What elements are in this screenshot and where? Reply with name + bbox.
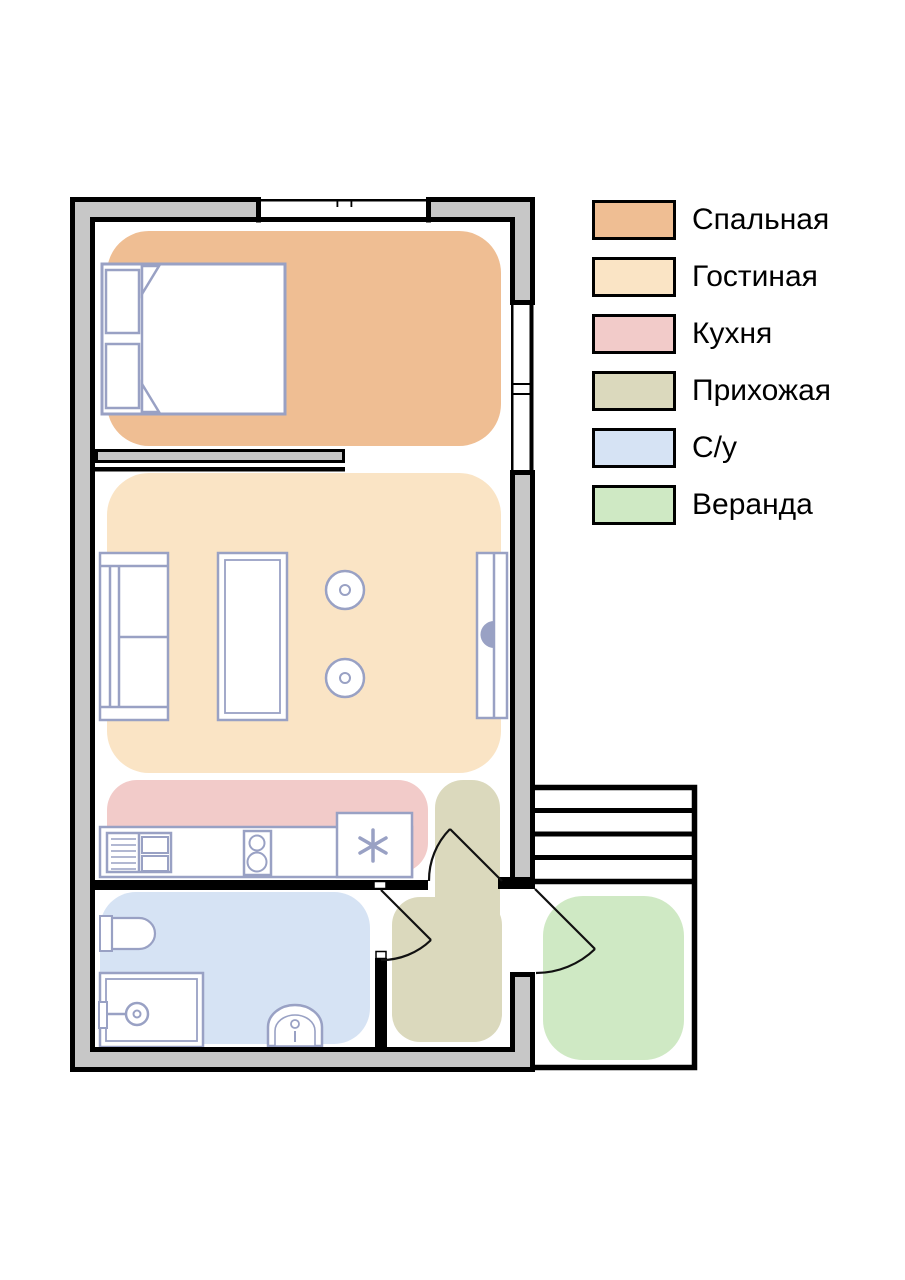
legend-label-kitchen: Кухня <box>692 314 772 354</box>
legend-row-living: Гостиная <box>592 257 831 297</box>
entry-opening <box>510 889 535 977</box>
zone-veranda <box>543 896 684 1060</box>
legend-label-veranda: Веранда <box>692 485 813 525</box>
pillow <box>106 270 139 333</box>
door-jamb <box>376 952 386 959</box>
legend: Спальная Гостиная Кухня Прихожая С/у Вер… <box>592 200 831 542</box>
legend-row-kitchen: Кухня <box>592 314 831 354</box>
toilet <box>100 916 155 951</box>
stool <box>326 571 364 609</box>
legend-label-bathroom: С/у <box>692 428 737 468</box>
window-right <box>510 300 535 475</box>
sofa <box>100 553 168 720</box>
legend-row-hallway: Прихожая <box>592 371 831 411</box>
legend-swatch-bedroom <box>592 200 676 240</box>
bed <box>102 264 285 414</box>
wall-bedroom-living <box>95 449 345 472</box>
window-top <box>256 197 431 223</box>
coffee-table <box>218 553 287 720</box>
legend-swatch-living <box>592 257 676 297</box>
stove <box>244 831 271 875</box>
legend-swatch-bathroom <box>592 428 676 468</box>
floor-plan <box>0 0 905 1280</box>
shower <box>99 973 203 1047</box>
door-jamb <box>374 882 386 889</box>
legend-label-bedroom: Спальная <box>692 200 829 240</box>
legend-row-bathroom: С/у <box>592 428 831 468</box>
tv-stand <box>477 553 507 718</box>
stool <box>326 659 364 697</box>
kitchen-sink-unit <box>337 813 412 877</box>
legend-swatch-kitchen <box>592 314 676 354</box>
legend-row-veranda: Веранда <box>592 485 831 525</box>
wall-bathroom-hallway <box>375 958 387 1047</box>
legend-label-hallway: Прихожая <box>692 371 831 411</box>
legend-label-living: Гостиная <box>692 257 818 297</box>
stairs <box>535 811 694 882</box>
washbasin <box>268 1005 322 1046</box>
wall-stub-right <box>498 877 535 889</box>
pillow <box>106 344 139 408</box>
legend-row-bedroom: Спальная <box>592 200 831 240</box>
floor-plan-page: Спальная Гостиная Кухня Прихожая С/у Вер… <box>0 0 905 1280</box>
kitchen-appliance <box>107 833 171 872</box>
legend-swatch-veranda <box>592 485 676 525</box>
legend-swatch-hallway <box>592 371 676 411</box>
